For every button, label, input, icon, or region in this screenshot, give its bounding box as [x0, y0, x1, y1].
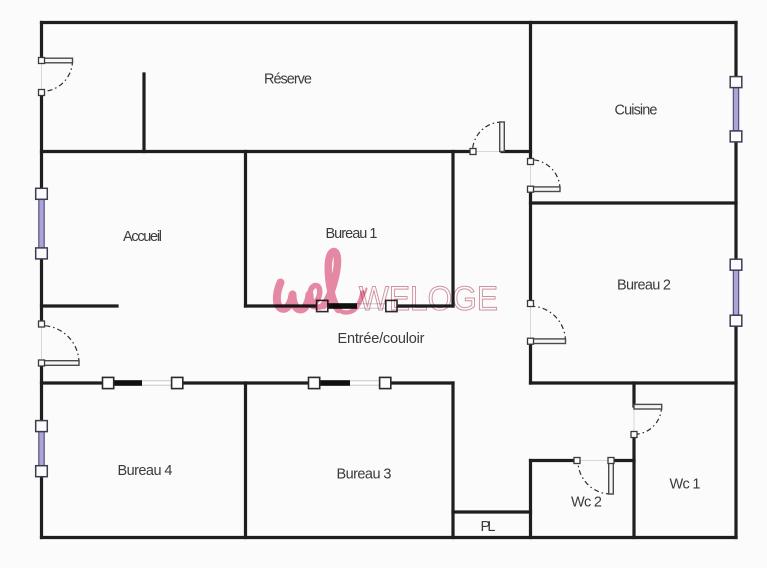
svg-text:Bureau 4: Bureau 4 — [118, 463, 173, 479]
svg-text:PL: PL — [481, 519, 496, 535]
svg-text:Accueil: Accueil — [123, 229, 162, 245]
svg-text:Wc 2: Wc 2 — [571, 495, 602, 511]
svg-text:Bureau 3: Bureau 3 — [337, 467, 392, 483]
svg-text:Entrée/couloir: Entrée/couloir — [338, 331, 425, 347]
svg-text:WELOGE: WELOGE — [359, 280, 498, 318]
svg-text:Bureau 1: Bureau 1 — [326, 226, 378, 242]
svg-text:Cuisine: Cuisine — [615, 103, 658, 119]
svg-text:Wc 1: Wc 1 — [670, 477, 701, 493]
svg-text:Réserve: Réserve — [264, 72, 312, 88]
svg-text:Bureau 2: Bureau 2 — [617, 278, 671, 294]
